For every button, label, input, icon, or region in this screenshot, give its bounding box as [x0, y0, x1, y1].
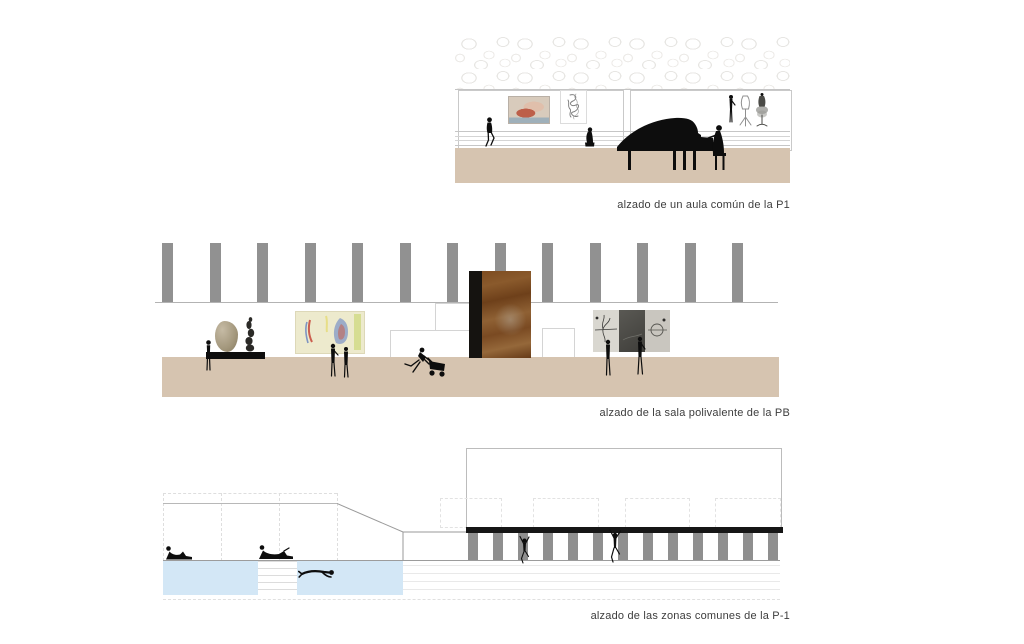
ceiling-column [352, 243, 363, 302]
dashed-grid-box [715, 498, 781, 528]
caption-aula: alzado de un aula común de la P1 [617, 199, 790, 211]
triptych-viewers-pair [600, 330, 650, 379]
baluster [693, 533, 703, 560]
ceiling-column [542, 243, 553, 302]
dashed-grid-box [625, 498, 690, 528]
ceiling-column [400, 243, 411, 302]
mannequin-group [726, 91, 773, 134]
stone-sculpture [215, 321, 238, 352]
baluster [743, 533, 753, 560]
baluster [768, 533, 778, 560]
elevation-aula-comun-p1: alzado de un aula común de la P1 [455, 35, 790, 183]
sculpture-table [206, 352, 265, 359]
grand-piano-with-pianist [615, 111, 730, 173]
climbing-figure [607, 528, 624, 564]
reclining-figure-painting [508, 96, 550, 124]
dashed-grid-line [163, 493, 337, 494]
bronze-sculpture [242, 317, 257, 352]
corten-black-stripe [469, 271, 482, 358]
ceiling-column [257, 243, 268, 302]
section-hatch-lines [403, 565, 780, 593]
caption-sala: alzado de la sala polivalente de la PB [600, 407, 790, 419]
ramp-line [337, 503, 467, 561]
elevation-zonas-comunes-p-1: alzado de las zonas comunes de la P-1 [163, 448, 783, 601]
pool-steps [258, 561, 297, 595]
baluster [468, 533, 478, 560]
seated-figure [482, 117, 499, 148]
floor-band [162, 357, 779, 397]
white-wall-panel [542, 328, 575, 359]
swimmer-figure [298, 565, 336, 581]
dashed-grid-box [533, 498, 599, 528]
caption-zonas: alzado de las zonas comunes de la P-1 [591, 610, 790, 622]
pool-water [163, 561, 258, 595]
ceiling-column [447, 243, 458, 302]
gesture-sketch-artwork [560, 90, 587, 124]
baluster [718, 533, 728, 560]
baluster [593, 533, 603, 560]
baluster [568, 533, 578, 560]
painting-viewers-pair [326, 333, 354, 379]
ceiling-column [637, 243, 648, 302]
elevation-sala-polivalente-pb: alzado de la sala polivalente de la PB [155, 243, 780, 399]
climbing-figure [517, 535, 532, 564]
baluster [668, 533, 678, 560]
deck-level-line [163, 503, 337, 504]
kneeling-figure [582, 127, 597, 149]
ceiling-column [305, 243, 316, 302]
corten-steel-panel [469, 271, 531, 358]
sunbather-figure [257, 541, 295, 561]
ceiling-column [685, 243, 696, 302]
ceiling-column-row [162, 243, 743, 302]
baluster [543, 533, 553, 560]
ceiling-column [210, 243, 221, 302]
standing-figure [203, 340, 214, 372]
baluster [493, 533, 503, 560]
ceiling-column [732, 243, 743, 302]
stone-texture-band [455, 35, 790, 90]
figure-pushing-cart [399, 344, 453, 379]
ceiling-column [162, 243, 173, 302]
sunbather-figure [164, 544, 193, 561]
corten-rust-face [482, 271, 531, 358]
architecture-board: alzado de un aula común de la P1 [0, 0, 1024, 644]
dashed-ground-line [163, 599, 780, 600]
baluster [643, 533, 653, 560]
ceiling-column [590, 243, 601, 302]
